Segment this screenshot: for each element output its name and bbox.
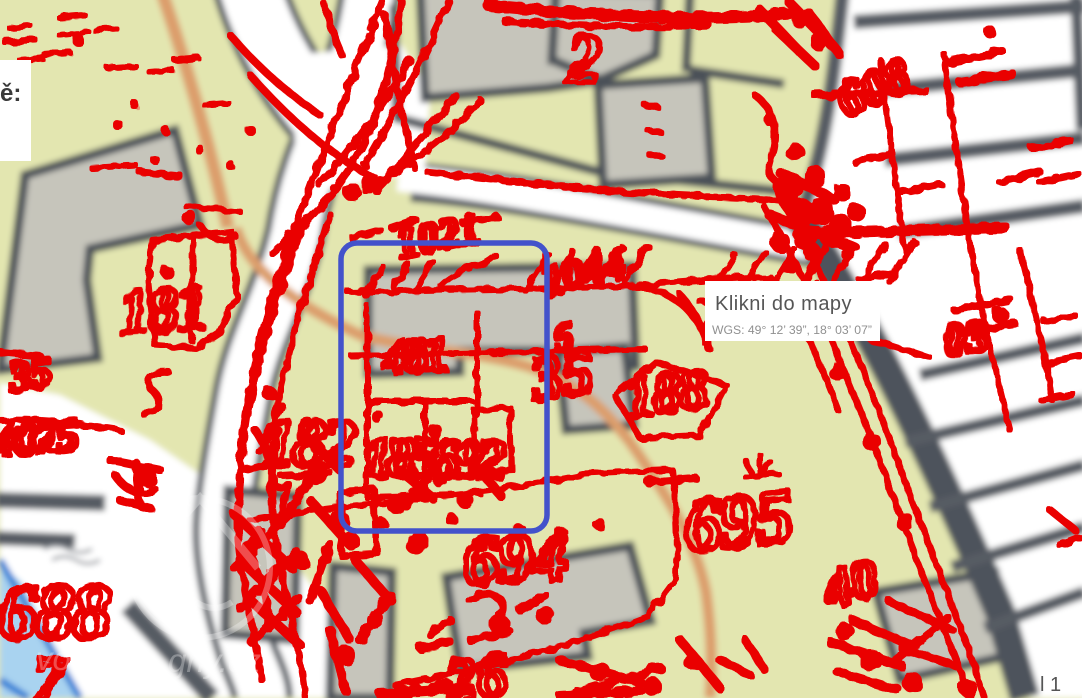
svg-text:l 1: l 1 <box>1040 674 1061 696</box>
svg-text:ě:: ě: <box>0 80 21 107</box>
svg-text:694: 694 <box>459 514 569 601</box>
svg-text:WGS: 49° 12’ 39”, 18° 03’ 07”: WGS: 49° 12’ 39”, 18° 03’ 07” <box>712 323 872 337</box>
svg-text:gny.cz: gny.cz <box>168 642 261 679</box>
svg-text:vo: vo <box>36 640 71 677</box>
svg-text:695: 695 <box>679 474 796 569</box>
svg-text:2: 2 <box>565 21 601 98</box>
svg-text:Klikni do mapy: Klikni do mapy <box>715 293 852 315</box>
